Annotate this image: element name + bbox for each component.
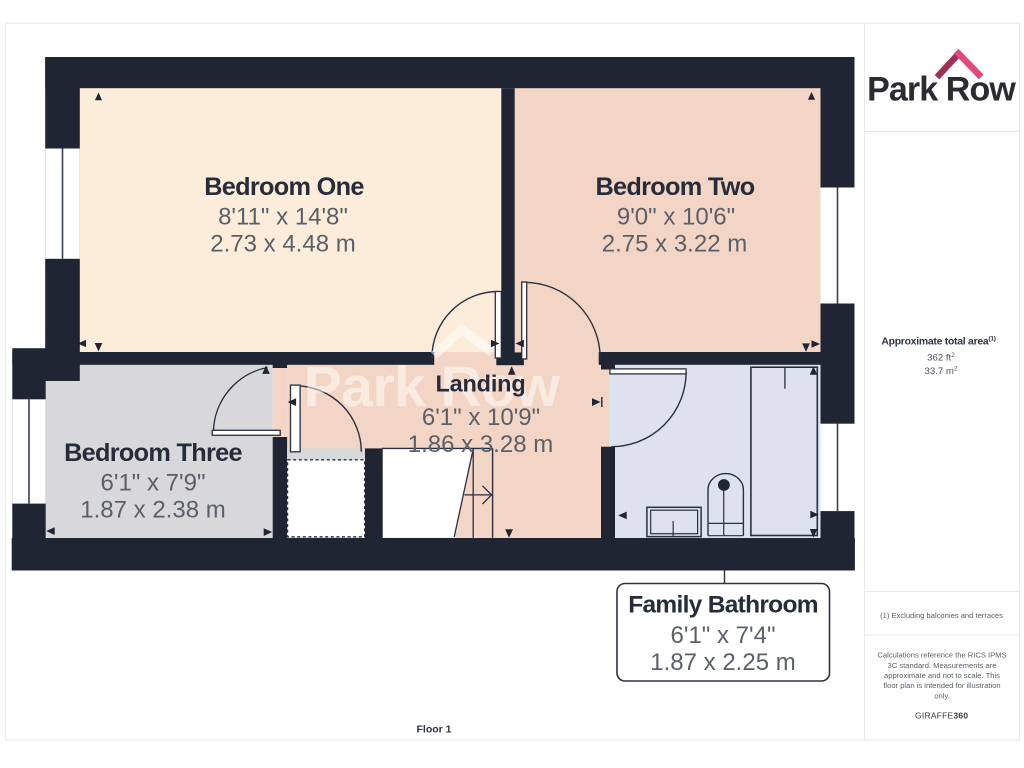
svg-text:6'1" x 7'9": 6'1" x 7'9" bbox=[101, 470, 206, 497]
svg-text:9'0" x 10'6": 9'0" x 10'6" bbox=[617, 204, 735, 231]
svg-text:GIRAFFE360: GIRAFFE360 bbox=[915, 711, 968, 721]
svg-text:8'11" x 14'8": 8'11" x 14'8" bbox=[218, 204, 348, 231]
svg-text:2.75 x 3.22 m: 2.75 x 3.22 m bbox=[602, 231, 747, 258]
svg-text:1.87 x 2.25 m: 1.87 x 2.25 m bbox=[650, 649, 795, 676]
svg-text:Approximate total area(1): Approximate total area(1) bbox=[881, 335, 995, 347]
svg-text:floor plan is intended for ill: floor plan is intended for illustration bbox=[883, 681, 1000, 690]
svg-text:33.7 m2: 33.7 m2 bbox=[925, 366, 958, 378]
svg-text:Bedroom One: Bedroom One bbox=[204, 173, 364, 201]
svg-text:Bedroom Three: Bedroom Three bbox=[64, 439, 242, 467]
svg-text:3C standard. Measurements are: 3C standard. Measurements are bbox=[888, 661, 997, 670]
svg-text:(1) Excluding balconies and te: (1) Excluding balconies and terraces bbox=[880, 611, 1003, 620]
svg-text:Floor 1: Floor 1 bbox=[416, 724, 451, 736]
svg-text:6'1" x 7'4": 6'1" x 7'4" bbox=[671, 622, 776, 649]
svg-text:Landing: Landing bbox=[436, 371, 526, 397]
svg-text:1.87 x 2.38 m: 1.87 x 2.38 m bbox=[80, 497, 225, 524]
svg-text:6'1" x 10'9": 6'1" x 10'9" bbox=[422, 404, 540, 431]
svg-text:Bedroom Two: Bedroom Two bbox=[595, 173, 754, 201]
svg-text:2.73 x 4.48 m: 2.73 x 4.48 m bbox=[210, 231, 355, 258]
svg-text:362 ft2: 362 ft2 bbox=[927, 352, 955, 364]
svg-text:Calculations reference the RIC: Calculations reference the RICS IPMS bbox=[877, 651, 1006, 660]
svg-text:only.: only. bbox=[934, 691, 949, 700]
svg-text:1.86 x 3.28 m: 1.86 x 3.28 m bbox=[408, 431, 553, 458]
svg-text:approximate and not to scale.: approximate and not to scale. This bbox=[884, 671, 1000, 680]
svg-text:Family Bathroom: Family Bathroom bbox=[628, 592, 818, 619]
svg-text:Park Row: Park Row bbox=[867, 70, 1016, 108]
